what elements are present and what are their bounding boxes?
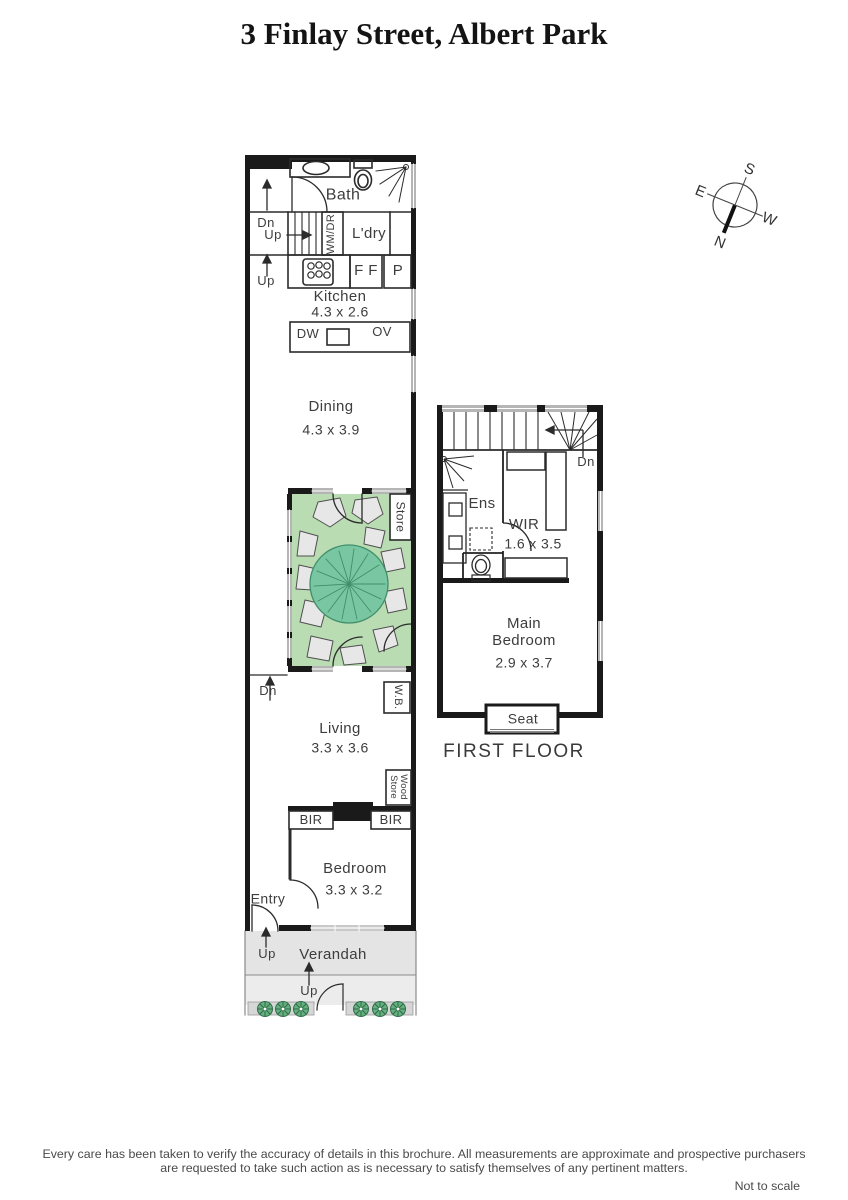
label-oven: OV xyxy=(372,325,392,339)
basin-icon xyxy=(449,536,462,549)
dim-label-main-bedroom: 2.9 x 3.7 xyxy=(495,656,552,671)
label-wood-store: Wood Store xyxy=(388,774,408,799)
label-wood-burner: W.B. xyxy=(391,685,403,710)
tree-icon xyxy=(310,545,388,623)
basin-icon xyxy=(303,162,329,175)
scale-note: Not to scale xyxy=(735,1179,800,1193)
cooktop-burners xyxy=(308,262,330,278)
dim-label-kitchen: 4.3 x 2.6 xyxy=(311,305,368,320)
room-label-bedroom: Bedroom xyxy=(323,861,387,877)
front-wall-openings xyxy=(250,925,384,931)
room-label-entry: Entry xyxy=(251,892,286,907)
room-label-bath: Bath xyxy=(326,188,361,205)
dim-label-bedroom: 3.3 x 3.2 xyxy=(325,883,382,898)
compass-n: N xyxy=(712,233,728,253)
stair-label-dn-living: Dn xyxy=(259,684,276,698)
kitchen-bench xyxy=(288,255,350,288)
stair-label-up-kitchen: Up xyxy=(257,274,274,288)
disclaimer: Every care has been taken to verify the … xyxy=(0,1148,848,1175)
ens-fixtures xyxy=(442,456,493,581)
compass-w: W xyxy=(759,209,779,230)
label-wm-dr: WM/DR xyxy=(326,214,338,255)
ff-stair-label-dn: Dn xyxy=(577,455,594,469)
label-bir-left: BIR xyxy=(300,813,323,827)
room-label-kitchen: Kitchen xyxy=(314,289,367,305)
stair-label-up-path: Up xyxy=(300,984,317,998)
room-label-main-bedroom-1: Main xyxy=(507,616,541,632)
chimney xyxy=(333,802,373,821)
shower-icon xyxy=(376,165,409,203)
label-fridge: F F xyxy=(354,263,378,279)
dim-label-living: 3.3 x 3.6 xyxy=(311,741,368,756)
disclaimer-line-1: Every care has been taken to verify the … xyxy=(0,1148,848,1162)
winder-treads xyxy=(548,412,597,450)
room-label-wir: WIR xyxy=(509,517,539,533)
dim-label-wir: 1.6 x 3.5 xyxy=(504,537,561,552)
disclaimer-line-2: are requested to take such action as is … xyxy=(0,1162,848,1176)
ff-stairs xyxy=(443,412,597,450)
room-label-dining: Dining xyxy=(309,399,354,415)
floorplan-page: 3 Finlay Street, Albert Park xyxy=(0,0,848,1200)
bath-door-arc xyxy=(292,177,327,212)
label-pantry: P xyxy=(393,263,403,279)
first-floor-title: FIRST FLOOR xyxy=(443,742,585,762)
wir-shelves xyxy=(505,452,567,578)
dim-label-dining: 4.3 x 3.9 xyxy=(302,423,359,438)
stair-label-up: Up xyxy=(264,228,281,242)
room-label-verandah: Verandah xyxy=(299,947,366,963)
dashed-overhead xyxy=(470,528,492,550)
label-bir-right: BIR xyxy=(380,813,403,827)
label-seat: Seat xyxy=(508,712,538,727)
compass: S N E W xyxy=(678,146,795,268)
room-label-store: Store xyxy=(394,502,407,533)
room-label-main-bedroom-2: Bedroom xyxy=(492,633,556,649)
label-dishwasher: DW xyxy=(297,327,319,341)
sink-icon xyxy=(327,329,349,345)
bedroom-door-arc xyxy=(290,880,318,908)
compass-s: S xyxy=(742,160,758,180)
shower-icon xyxy=(442,456,475,488)
room-label-living: Living xyxy=(319,721,361,737)
floorplan-drawing: S N E W xyxy=(0,0,848,1200)
verandah-area xyxy=(245,931,416,1015)
stair-label-up-verandah: Up xyxy=(258,947,275,961)
basin-icon xyxy=(449,503,462,516)
room-label-ensuite: Ens xyxy=(468,496,495,512)
compass-e: E xyxy=(693,182,709,202)
room-label-laundry: L'dry xyxy=(352,226,386,242)
